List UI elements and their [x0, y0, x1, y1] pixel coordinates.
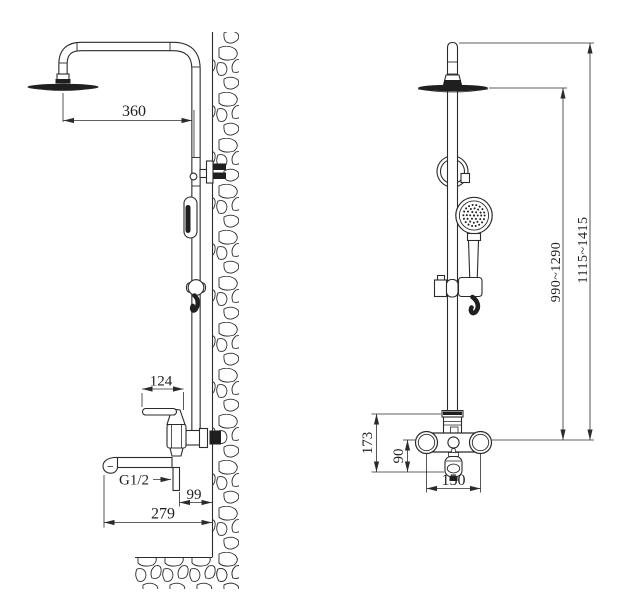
right-inlet-escutcheon [470, 432, 492, 454]
side-view: 360 124 G1/2 99 279 [28, 32, 240, 589]
shower-hose-front [471, 297, 478, 313]
diverter-knob [448, 437, 459, 448]
slider-holder-side [187, 280, 206, 311]
wall-supply-block [210, 431, 222, 445]
shower-column-front [448, 43, 458, 413]
spout-outlet-pipe [173, 468, 180, 491]
technical-drawing-page: 360 124 G1/2 99 279 [0, 0, 639, 600]
rain-shower-head-front [418, 75, 488, 92]
hand-shower-side [184, 197, 197, 238]
dim-head-height-range-label: 990~1290 [549, 242, 564, 303]
dim-handle-length-label: 124 [150, 374, 173, 390]
shower-column-side [59, 42, 201, 431]
dim-center-to-spout-label: 90 [391, 449, 407, 464]
dim-spout-reach-label: 279 [151, 506, 175, 523]
dim-overall-height-range-label: 1115~1415 [576, 216, 591, 283]
left-inlet-escutcheon [416, 432, 438, 454]
mixer-body-side [167, 425, 186, 449]
shower-column-drawing: 360 124 G1/2 99 279 [0, 0, 639, 600]
dim-inlet-centers-label: 150 [442, 472, 466, 489]
wall-section [213, 32, 240, 588]
dim-head-to-column-label: 360 [122, 103, 146, 120]
floor-section [135, 558, 239, 590]
hand-shower-front [456, 197, 492, 286]
lever-handle-side [143, 409, 177, 416]
rain-shower-head-side [28, 74, 99, 91]
front-view: 990~1290 1115~1415 173 90 150 [360, 43, 594, 493]
dim-valve-to-spout-height-label: 173 [360, 432, 376, 455]
dim-outlet-to-wall-label: 99 [187, 487, 202, 503]
slider-holder-front [435, 276, 483, 314]
spout-tip-side [103, 458, 118, 474]
dim-inlet-thread-label: G1/2 [119, 473, 149, 489]
